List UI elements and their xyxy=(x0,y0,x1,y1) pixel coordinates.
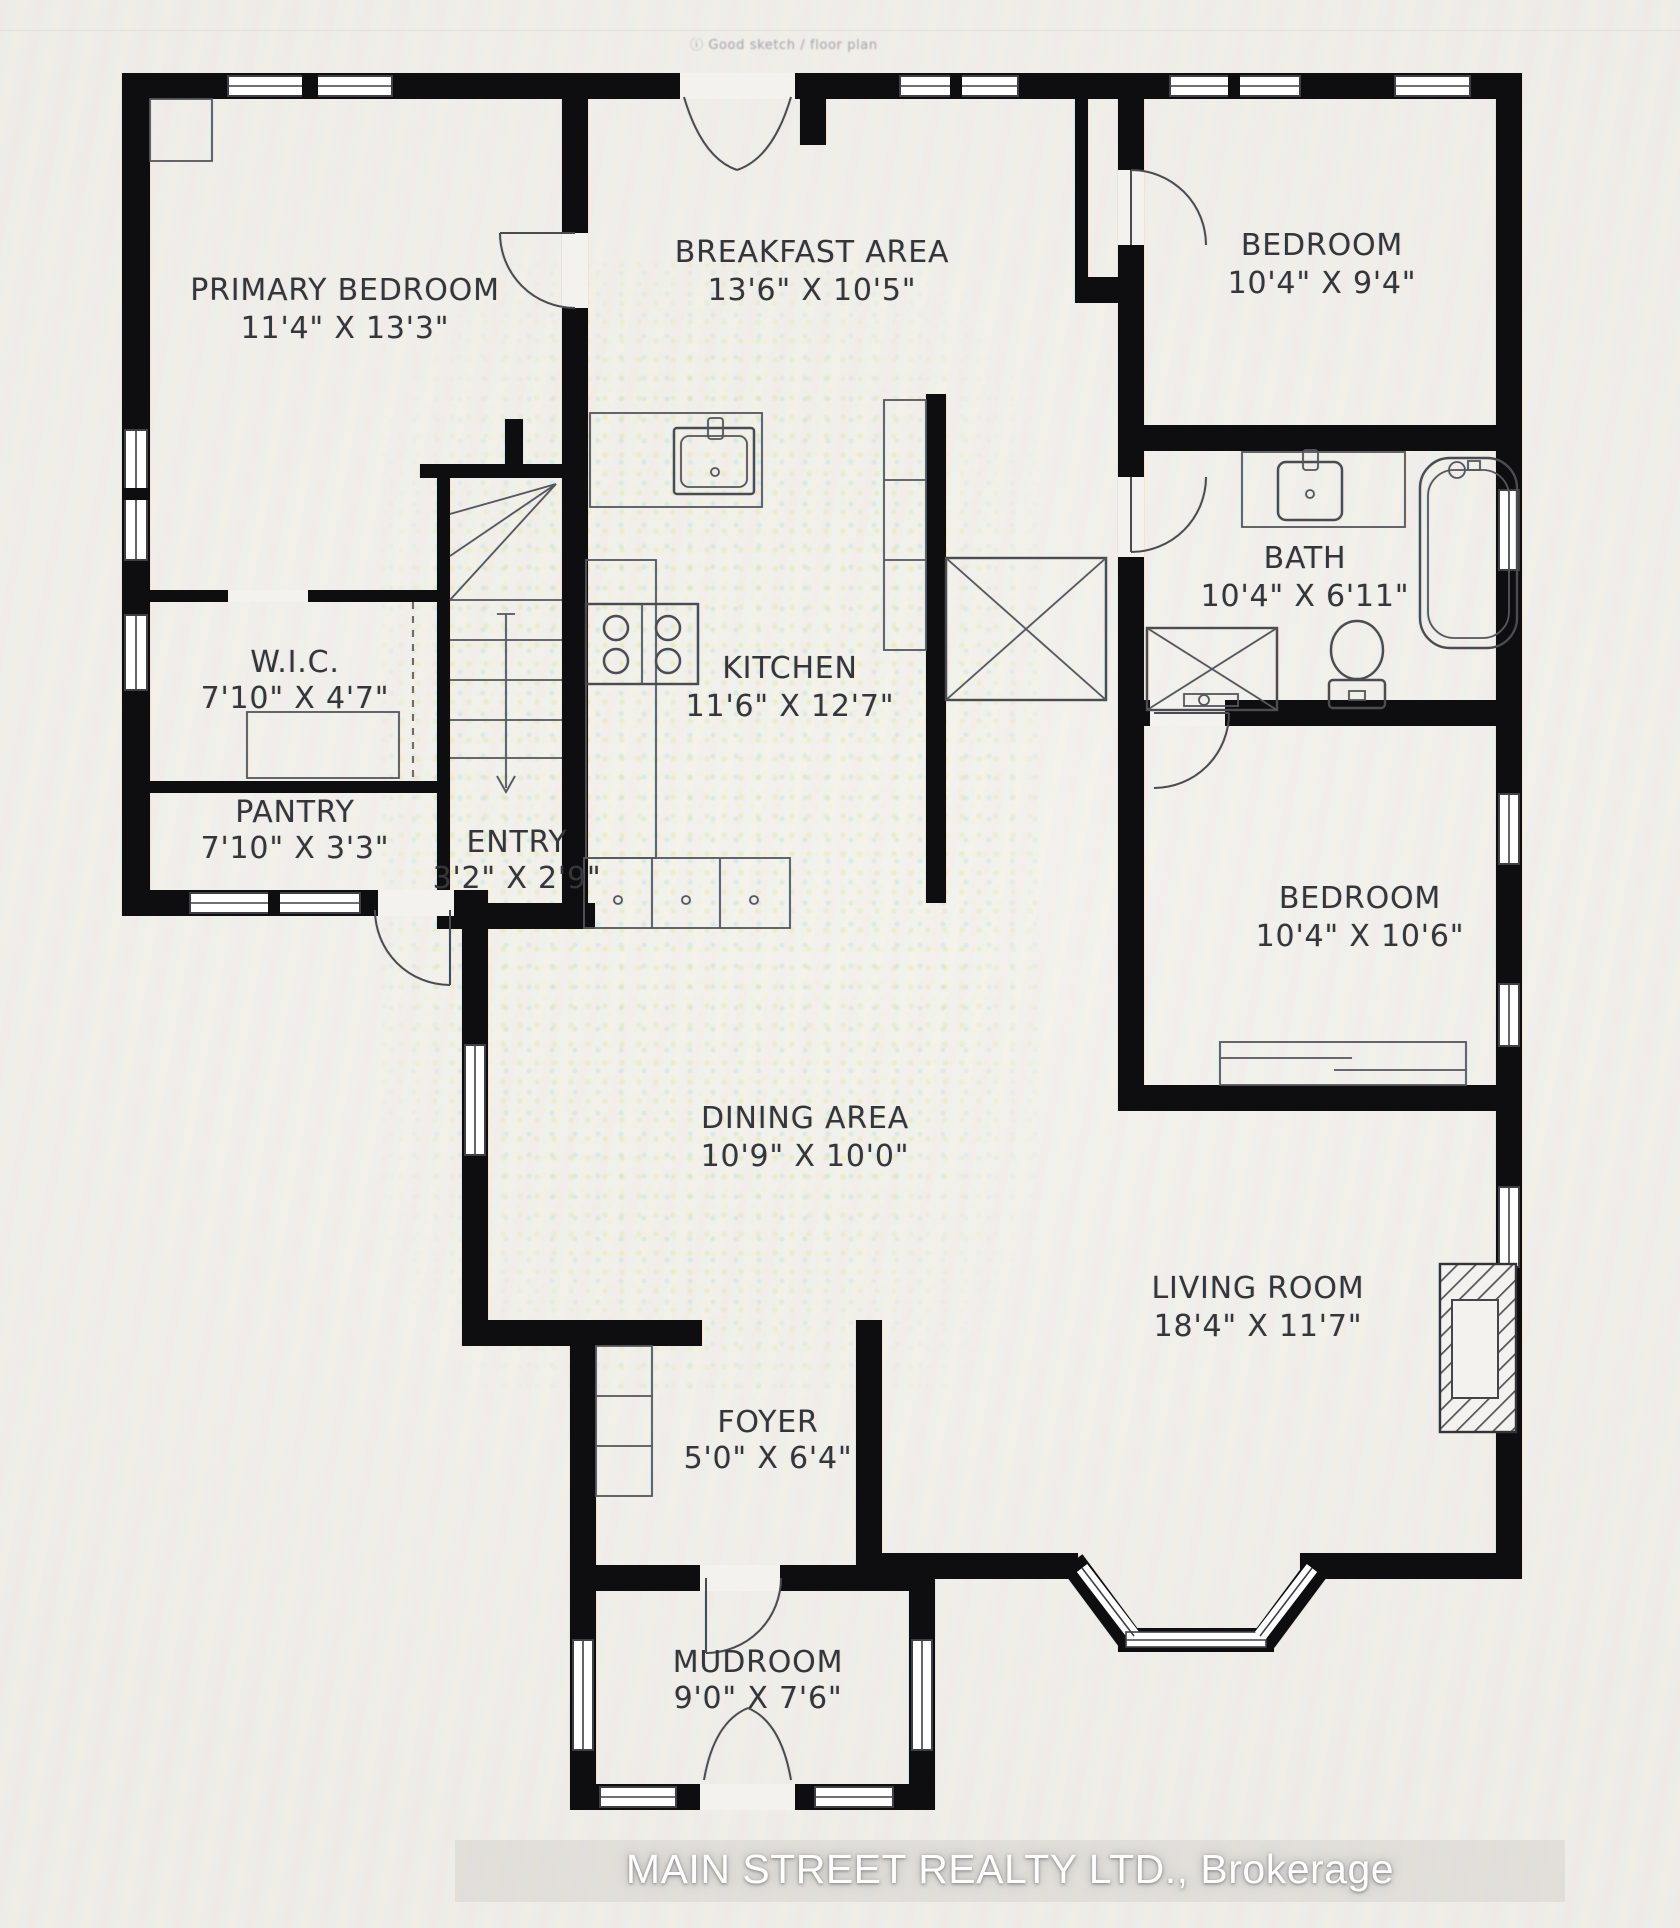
room-name: BEDROOM xyxy=(1279,881,1441,916)
staircase xyxy=(450,484,562,792)
room-name: BREAKFAST AREA xyxy=(675,235,950,270)
kitchen-tall-cabinets xyxy=(884,400,926,650)
room-name: BEDROOM xyxy=(1241,228,1403,263)
room-name: PANTRY xyxy=(235,795,355,830)
room-label-bedroom-mid: BEDROOM 10'4" X 10'6" xyxy=(1256,881,1465,954)
room-size: 11'6" X 12'7" xyxy=(686,689,895,724)
kitchen-stove xyxy=(586,560,698,858)
kitchen-peninsula-cabinets xyxy=(584,858,790,928)
primary-corner-unit xyxy=(150,99,212,161)
bedroom-sliding-closet xyxy=(1220,1042,1466,1085)
room-name: BATH xyxy=(1264,541,1347,576)
room-label-bedroom-top: BEDROOM 10'4" X 9'4" xyxy=(1228,228,1417,301)
mudroom-exterior-door xyxy=(704,1708,791,1780)
room-name: DINING AREA xyxy=(701,1101,909,1136)
linen-closet xyxy=(946,558,1106,700)
room-size: 5'0" X 6'4" xyxy=(684,1441,853,1476)
kitchen-sink-counter xyxy=(590,413,762,507)
room-name: KITCHEN xyxy=(722,651,858,686)
room-size: 11'4" X 13'3" xyxy=(241,311,450,346)
room-label-wic: W.I.C. 7'10" X 4'7" xyxy=(201,645,390,716)
room-label-primary-bedroom: PRIMARY BEDROOM 11'4" X 13'3" xyxy=(190,273,500,346)
room-label-kitchen: KITCHEN 11'6" X 12'7" xyxy=(686,651,895,724)
room-label-foyer: FOYER 5'0" X 6'4" xyxy=(684,1405,853,1476)
room-size: 10'4" X 6'11" xyxy=(1201,579,1410,614)
room-label-breakfast-area: BREAKFAST AREA 13'6" X 10'5" xyxy=(675,235,950,308)
breakfast-patio-door xyxy=(684,97,791,170)
room-label-mudroom: MUDROOM 9'0" X 7'6" xyxy=(673,1645,844,1716)
floor-plan-page: { "watermark": "ⓘ Good sketch / floor pl… xyxy=(0,0,1680,1928)
room-size: 18'4" X 11'7" xyxy=(1154,1309,1363,1344)
room-name: FOYER xyxy=(717,1405,818,1440)
room-name: ENTRY xyxy=(467,825,568,860)
foyer-closet xyxy=(596,1346,652,1496)
room-size: 10'9" X 10'0" xyxy=(701,1139,910,1174)
room-name: PRIMARY BEDROOM xyxy=(190,273,500,308)
room-label-living-room: LIVING ROOM 18'4" X 11'7" xyxy=(1152,1271,1365,1344)
floor-plan-drawing: PRIMARY BEDROOM 11'4" X 13'3" BREAKFAST … xyxy=(0,0,1680,1928)
bath-vanity-sink xyxy=(1242,450,1405,527)
room-size: 10'4" X 9'4" xyxy=(1228,266,1417,301)
door-swings xyxy=(375,97,1229,1780)
toilet xyxy=(1329,621,1385,708)
room-name: MUDROOM xyxy=(673,1645,844,1680)
room-size: 3'2" X 2'9" xyxy=(433,861,602,896)
bay-window xyxy=(1072,1562,1322,1652)
room-size: 7'10" X 4'7" xyxy=(201,681,390,716)
shower xyxy=(1147,628,1277,710)
room-name: W.I.C. xyxy=(250,645,339,680)
room-label-bath: BATH 10'4" X 6'11" xyxy=(1201,541,1410,614)
brokerage-name: MAIN STREET REALTY LTD., Brokerage xyxy=(455,1846,1565,1893)
room-size: 10'4" X 10'6" xyxy=(1256,919,1465,954)
fireplace xyxy=(1440,1264,1516,1432)
room-size: 13'6" X 10'5" xyxy=(708,273,917,308)
room-name: LIVING ROOM xyxy=(1152,1271,1365,1306)
room-label-dining-area: DINING AREA 10'9" X 10'0" xyxy=(701,1101,910,1174)
room-label-pantry: PANTRY 7'10" X 3'3" xyxy=(201,795,390,866)
room-size: 9'0" X 7'6" xyxy=(674,1681,843,1716)
room-size: 7'10" X 3'3" xyxy=(201,831,390,866)
